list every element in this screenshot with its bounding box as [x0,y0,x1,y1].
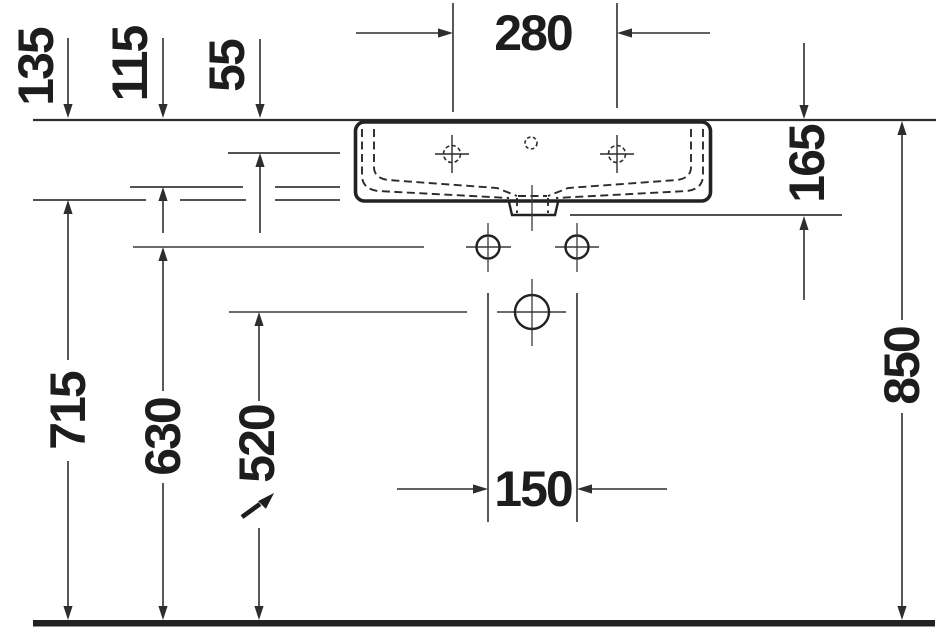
dim-label-280: 280 [494,5,572,61]
dim-label-630: 630 [135,398,191,476]
dim-850: 850 [874,121,930,620]
washbasin-dimension-drawing: 280 135 115 55 165 850 [0,0,938,633]
dim-label-850: 850 [874,327,930,405]
dim-165: 165 [779,43,835,300]
diagonal-arrow-icon [242,493,274,517]
basin-outline [356,122,711,201]
dim-label-115: 115 [102,25,158,101]
dim-label-135: 135 [8,27,64,106]
drawing-canvas: 280 135 115 55 165 850 [0,0,938,633]
dim-55: 55 [199,39,265,233]
dim-label-165: 165 [779,124,835,203]
dim-label-520: 520 [229,405,285,483]
dim-label-150: 150 [494,461,572,517]
dim-label-55: 55 [199,39,255,92]
dim-715: 715 [40,371,96,620]
floor-line [33,620,935,627]
dim-520: 520 [229,312,285,620]
dim-630: 630 [135,247,191,620]
left-reference-lines [33,153,340,200]
dim-135: 135 [8,27,73,360]
dim-280: 280 [356,3,710,112]
dim-115: 115 [102,25,168,233]
dim-label-715: 715 [40,371,96,450]
